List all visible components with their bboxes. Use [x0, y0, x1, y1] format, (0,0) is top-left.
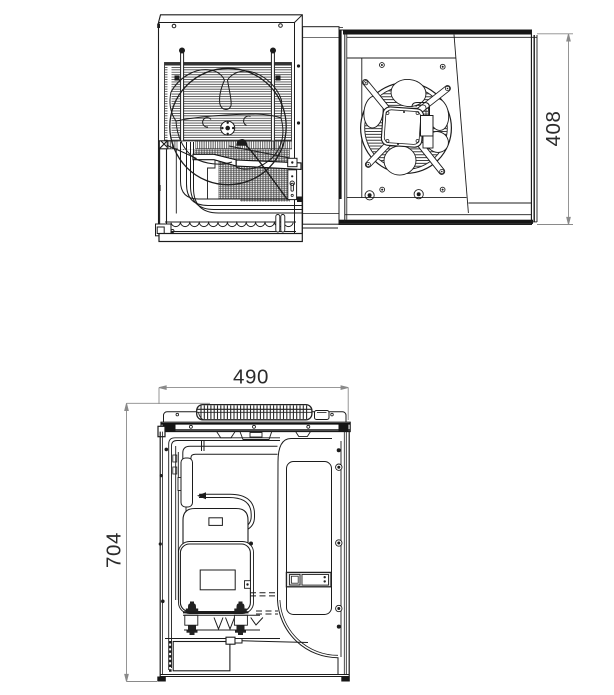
svg-text:408: 408	[542, 110, 565, 146]
svg-text:490: 490	[233, 366, 269, 389]
svg-text:704: 704	[103, 532, 126, 568]
